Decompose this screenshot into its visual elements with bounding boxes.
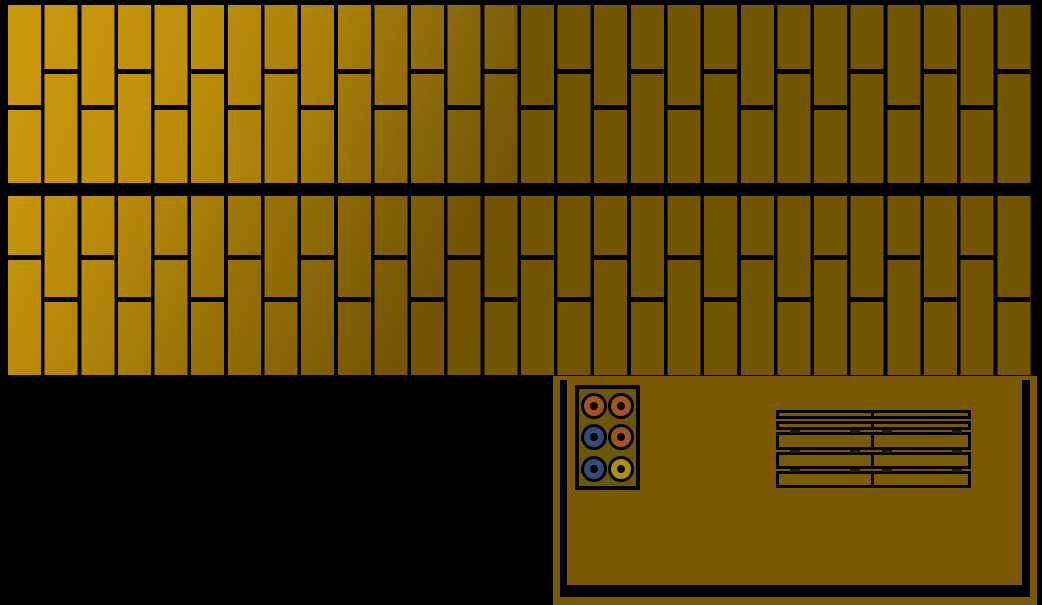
- yellow-token[interactable]: [608, 456, 634, 482]
- lower-plank-band: [8, 196, 1034, 375]
- token-center-dot: [590, 402, 598, 410]
- slatted-crate: [776, 410, 971, 488]
- slat-gap-tick: [882, 430, 892, 433]
- slat-row-thick: [776, 432, 971, 450]
- orange-token[interactable]: [608, 424, 634, 450]
- token-center-dot: [617, 465, 625, 473]
- slat-board: [776, 432, 874, 450]
- game-scene: [0, 0, 1042, 605]
- slat-gap-tick: [882, 469, 892, 472]
- slat-gap-tick: [790, 430, 800, 433]
- slat-row-thin: [776, 421, 971, 430]
- slat-gap-tick: [850, 469, 860, 472]
- slat-row-thick: [776, 471, 971, 488]
- slat-board: [776, 452, 874, 469]
- slat-row-thin: [776, 410, 971, 419]
- table-frame-right: [1022, 380, 1030, 585]
- slat-board: [776, 410, 874, 419]
- token-center-dot: [617, 402, 625, 410]
- slat-gap-tick: [882, 450, 892, 453]
- orange-token[interactable]: [608, 393, 634, 419]
- token-center-dot: [590, 465, 598, 473]
- token-center-dot: [617, 433, 625, 441]
- slat-board: [871, 410, 971, 419]
- table-frame-left: [560, 380, 567, 585]
- orange-token[interactable]: [581, 393, 607, 419]
- blue-token[interactable]: [581, 456, 607, 482]
- slat-row-thick: [776, 452, 971, 469]
- slat-gap-tick: [850, 430, 860, 433]
- table: [553, 376, 1037, 605]
- slat-gap-tick: [952, 430, 962, 433]
- token-tray: [575, 385, 640, 490]
- slat-gap-tick: [850, 450, 860, 453]
- slat-gap-tick: [952, 469, 962, 472]
- slat-gap-tick: [790, 469, 800, 472]
- slat-gap-tick: [790, 450, 800, 453]
- slat-board: [776, 471, 874, 488]
- blue-token[interactable]: [581, 424, 607, 450]
- token-center-dot: [590, 433, 598, 441]
- slat-board: [871, 452, 971, 469]
- slat-board: [871, 432, 971, 450]
- upper-plank-band: [8, 5, 1034, 183]
- slat-board: [871, 471, 971, 488]
- slat-gap-tick: [952, 450, 962, 453]
- table-frame-bottom: [560, 585, 1030, 597]
